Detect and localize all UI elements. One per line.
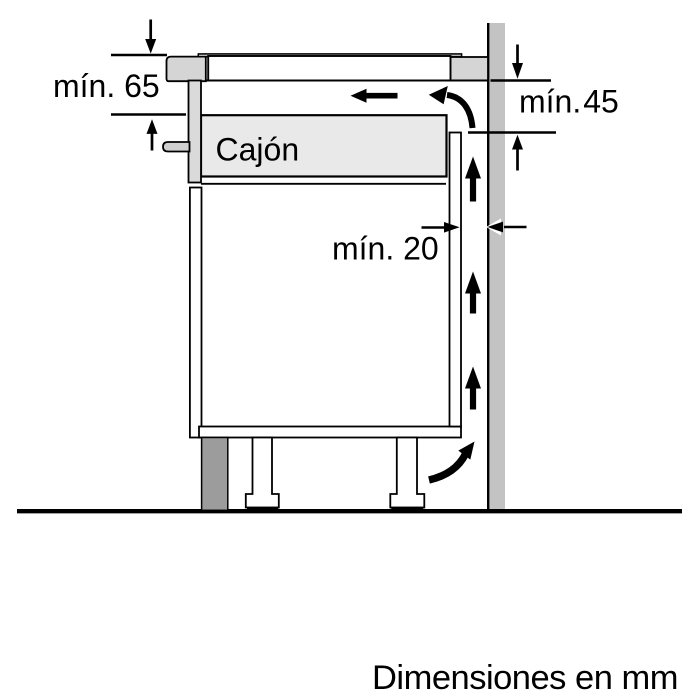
svg-text:mín. 65: mín. 65 bbox=[53, 68, 160, 104]
svg-text:Cajón: Cajón bbox=[216, 132, 300, 168]
svg-text:mín.45: mín.45 bbox=[519, 84, 619, 120]
svg-text:mín. 20: mín. 20 bbox=[332, 231, 439, 267]
svg-text:Dimensiones en mm: Dimensiones en mm bbox=[372, 659, 678, 697]
